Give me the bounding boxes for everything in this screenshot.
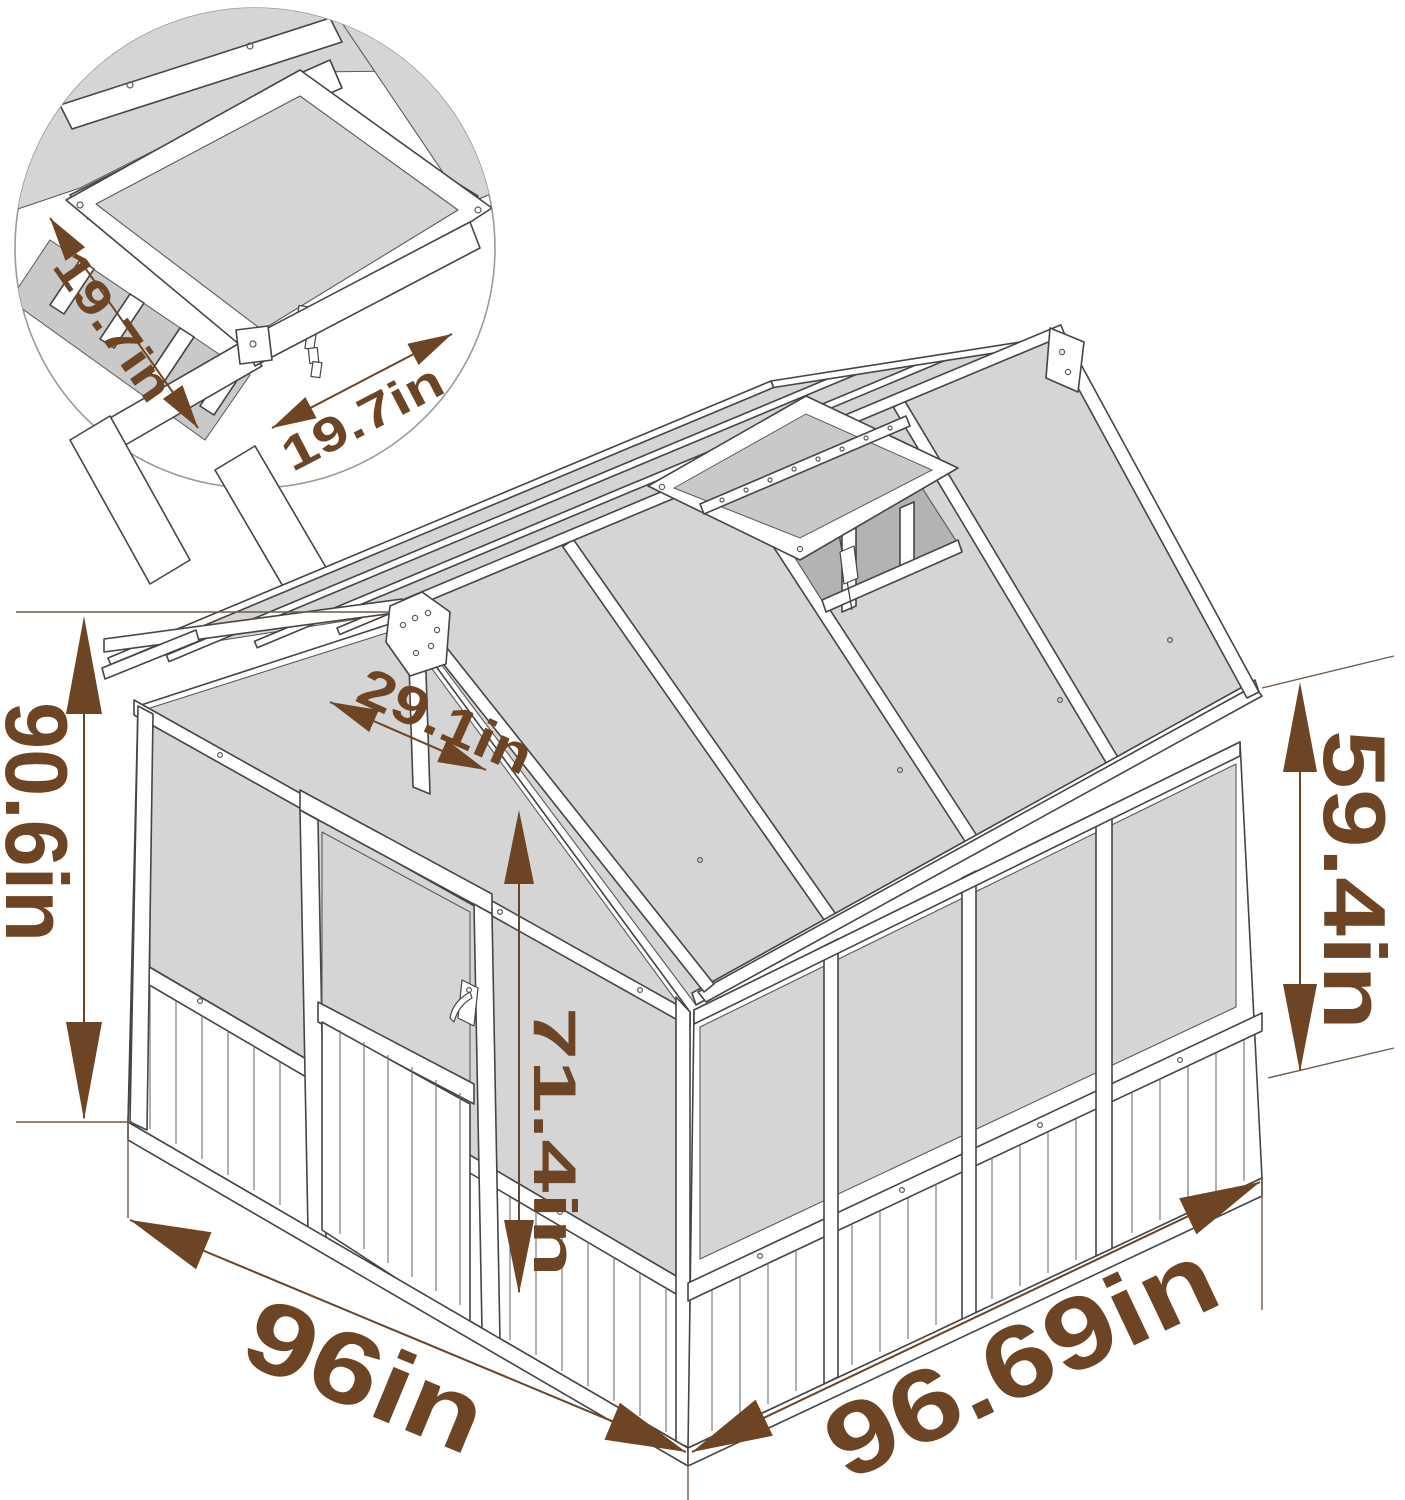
dim-arrowhead — [130, 1220, 212, 1269]
inset-joint-block — [236, 326, 272, 364]
dim-label-side-wall-height: 59.4in — [1305, 730, 1404, 1030]
dim-arrowhead — [66, 616, 102, 714]
greenhouse-dimension-diagram: 19.7in 19.7in — [0, 0, 1405, 1500]
dim-label-door-height: 71.4in — [521, 1007, 588, 1277]
side-post — [1096, 805, 1112, 1256]
front-right-post — [676, 997, 690, 1448]
dim-arrowhead — [66, 1022, 102, 1120]
dim-label-overall-height: 90.6in — [0, 702, 86, 942]
side-post — [824, 939, 838, 1384]
side-post — [962, 871, 976, 1320]
diagram-svg: 19.7in 19.7in — [0, 0, 1405, 1500]
side-wall-height-dimension: 59.4in — [1262, 656, 1404, 1078]
vent-stay-block — [840, 546, 858, 584]
